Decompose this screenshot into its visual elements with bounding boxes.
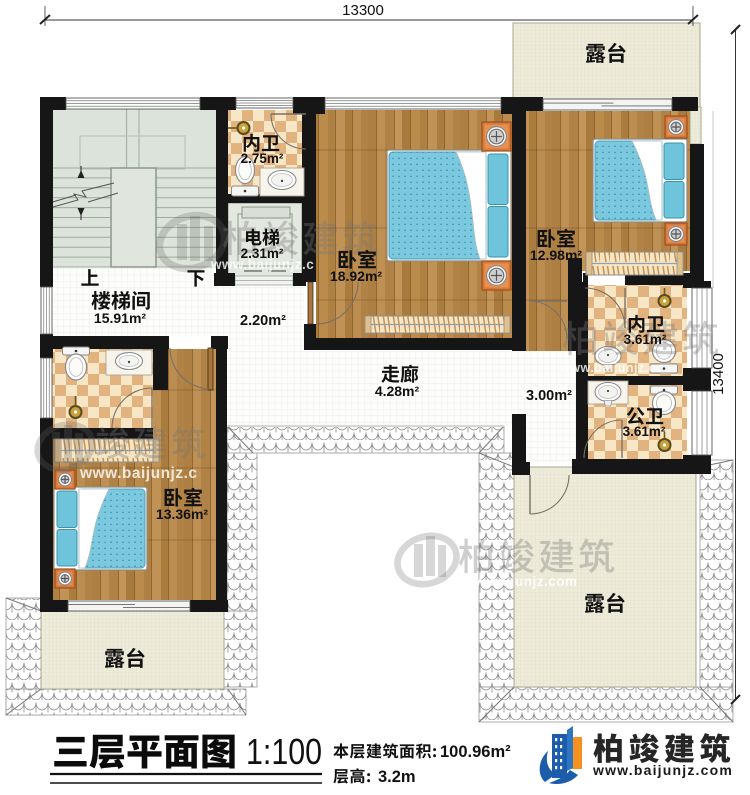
svg-text:www.baijunjz.c: www.baijunjz.c — [79, 465, 198, 482]
svg-text:3.00m²: 3.00m² — [526, 388, 572, 404]
svg-text:3.61m²: 3.61m² — [623, 424, 666, 439]
svg-text:3.61m²: 3.61m² — [624, 332, 667, 347]
svg-text:2.31m²: 2.31m² — [241, 246, 284, 261]
svg-text:www.baijunjz.com: www.baijunjz.com — [592, 762, 733, 778]
svg-text:13300: 13300 — [342, 2, 384, 19]
svg-text:13400: 13400 — [710, 353, 727, 395]
svg-text:4.28m²: 4.28m² — [375, 383, 420, 399]
svg-text:15.91m²: 15.91m² — [94, 310, 146, 326]
svg-text:12.98m²: 12.98m² — [530, 247, 582, 263]
svg-text:13.36m²: 13.36m² — [156, 506, 208, 522]
svg-text:www.baijunjz.com: www.baijunjz.com — [452, 574, 578, 589]
svg-text:www.baijunjz.cc: www.baijunjz.cc — [559, 361, 664, 375]
svg-text:18.92m²: 18.92m² — [330, 268, 382, 284]
svg-text:100.96m²: 100.96m² — [440, 743, 511, 761]
svg-text:1:100: 1:100 — [246, 731, 322, 772]
svg-text:2.20m²: 2.20m² — [240, 313, 286, 329]
svg-text:3.2m: 3.2m — [378, 768, 416, 786]
svg-text:2.75m²: 2.75m² — [241, 151, 284, 166]
